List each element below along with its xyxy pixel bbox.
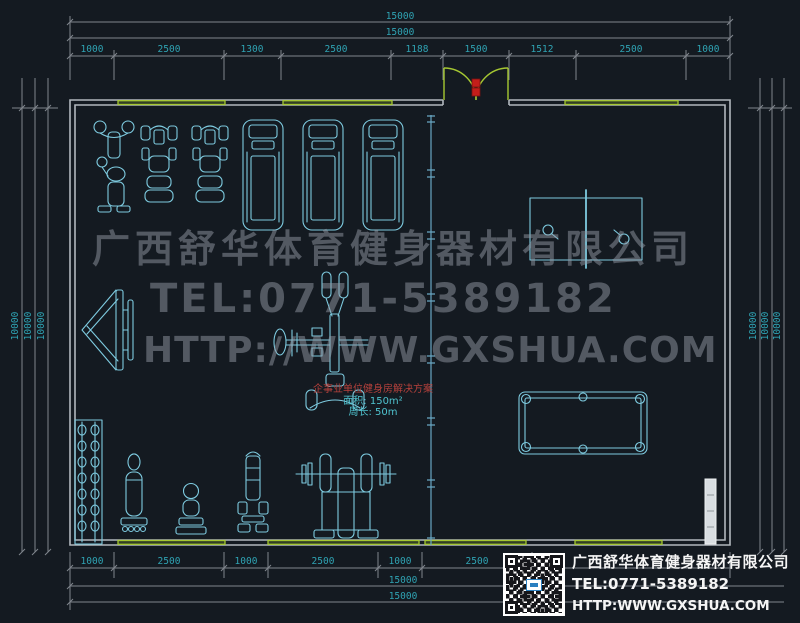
titleblock-url: HTTP:WWW.GXSHUA.COM <box>572 598 770 614</box>
dim-top-segment: 1000 <box>67 44 117 55</box>
dim-bottom-segment: 1000 <box>67 556 117 567</box>
dim-right: 10000 <box>748 306 760 346</box>
dim-left: 10000 <box>36 306 48 346</box>
dim-top-segment: 1512 <box>517 44 567 55</box>
exercise-bike-icon <box>141 126 177 202</box>
dim-top-total-outer: 15000 <box>375 11 425 22</box>
dim-top-segment: 2500 <box>311 44 361 55</box>
treadmill-icon <box>363 120 403 230</box>
qr-finder-icon <box>550 555 563 568</box>
dim-top-segment: 2500 <box>144 44 194 55</box>
watermark-tel: TEL:0771-5389182 <box>150 276 617 322</box>
dim-top-segment: 1188 <box>392 44 442 55</box>
cad-floor-plan-canvas: 15000 15000 1000 2500 1300 2500 1188 150… <box>0 0 800 623</box>
dim-bottom-total-outer: 15000 <box>378 591 428 602</box>
dim-right: 10000 <box>760 306 772 346</box>
qr-code <box>503 553 565 616</box>
weight-machine-icon <box>238 452 268 532</box>
treadmill-icon <box>303 120 343 230</box>
dim-left: 10000 <box>23 306 35 346</box>
dumbbell-rack-icon <box>75 420 102 544</box>
dim-bottom-segment: 2500 <box>144 556 194 567</box>
dim-top-segment: 1300 <box>227 44 277 55</box>
double-door <box>444 68 508 100</box>
dim-top-segment: 1000 <box>683 44 733 55</box>
dim-top-total-inner: 15000 <box>375 27 425 38</box>
stool-icon <box>176 484 206 535</box>
billiard-table-icon <box>519 392 647 454</box>
dim-bottom-segment: 1000 <box>221 556 271 567</box>
room-area-value: 面积: 150m² <box>298 396 448 408</box>
qr-finder-icon <box>505 555 518 568</box>
room-perimeter-value: 周长: 50m <box>298 407 448 419</box>
dim-top-segment: 2500 <box>606 44 656 55</box>
room-solution-title: 企事业单位健身房解决方案 <box>298 384 448 396</box>
dim-bottom-segment: 1000 <box>375 556 425 567</box>
dim-bottom-segment: 2500 <box>298 556 348 567</box>
elliptical-trainer-icon <box>94 121 134 212</box>
watermark-company: 广西舒华体育健身器材有限公司 <box>92 218 694 273</box>
dim-left: 10000 <box>10 306 22 346</box>
titleblock-company: 广西舒华体育健身器材有限公司 <box>572 551 789 572</box>
dim-bottom-total-inner: 15000 <box>378 575 428 586</box>
sit-up-bench-icon <box>82 290 133 370</box>
window-segments <box>118 101 678 545</box>
dim-right: 10000 <box>772 306 784 346</box>
qr-finder-icon <box>505 601 518 614</box>
exercise-bike-icon <box>192 126 228 202</box>
bench-press-icon <box>296 454 396 538</box>
qr-center-logo <box>526 579 542 591</box>
dim-bottom-segment: 2500 <box>452 556 502 567</box>
watermark-url: HTTP://WWW.GXSHUA.COM <box>143 330 718 371</box>
room-solution-label: 企事业单位健身房解决方案 面积: 150m² 周长: 50m <box>298 384 448 419</box>
treadmill-icon <box>243 120 283 230</box>
dim-top-segment: 1500 <box>451 44 501 55</box>
titleblock-tel: TEL:0771-5389182 <box>572 575 729 593</box>
weight-machine-icon <box>121 454 147 532</box>
wall-column <box>705 479 716 544</box>
